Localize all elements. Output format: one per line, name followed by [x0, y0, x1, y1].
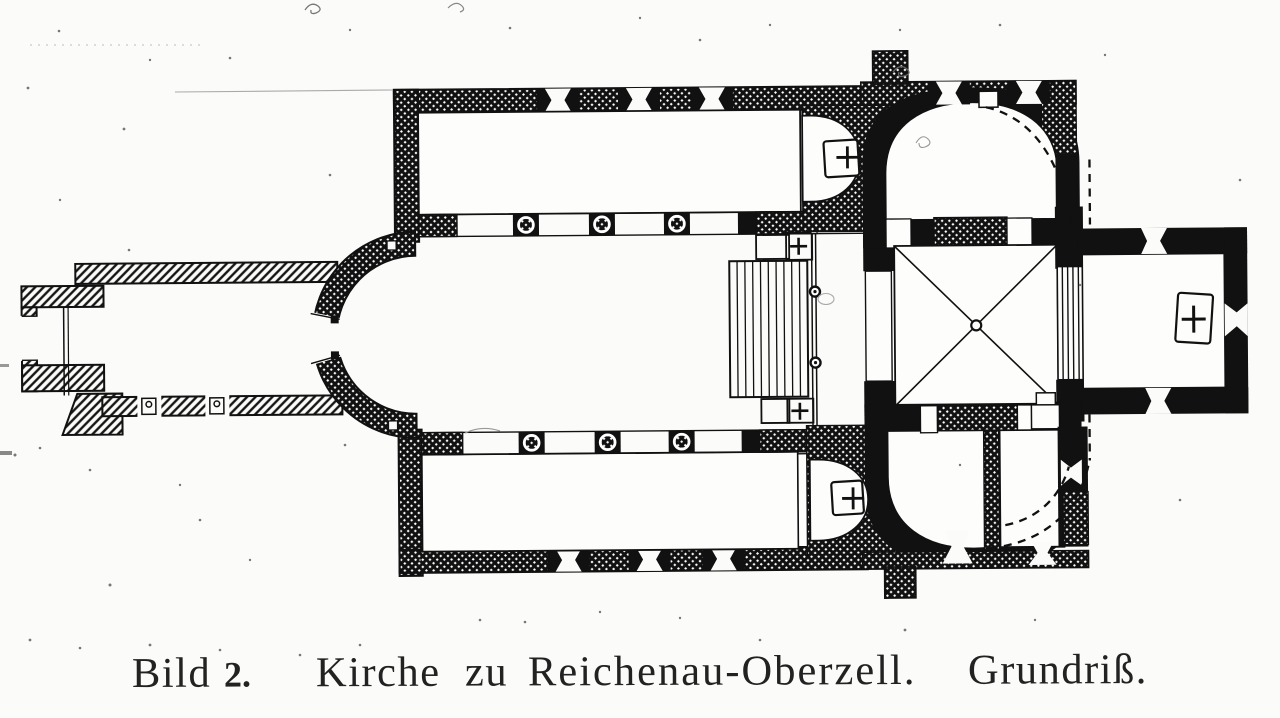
- svg-text:Grundriß.: Grundriß.: [968, 646, 1148, 694]
- svg-text:Bild: Bild: [132, 650, 211, 697]
- svg-text:2.: 2.: [224, 654, 251, 694]
- svg-text:Reichenau-Oberzell.: Reichenau-Oberzell.: [528, 647, 917, 695]
- svg-text:zu: zu: [465, 649, 508, 696]
- svg-text:Kirche: Kirche: [316, 649, 441, 696]
